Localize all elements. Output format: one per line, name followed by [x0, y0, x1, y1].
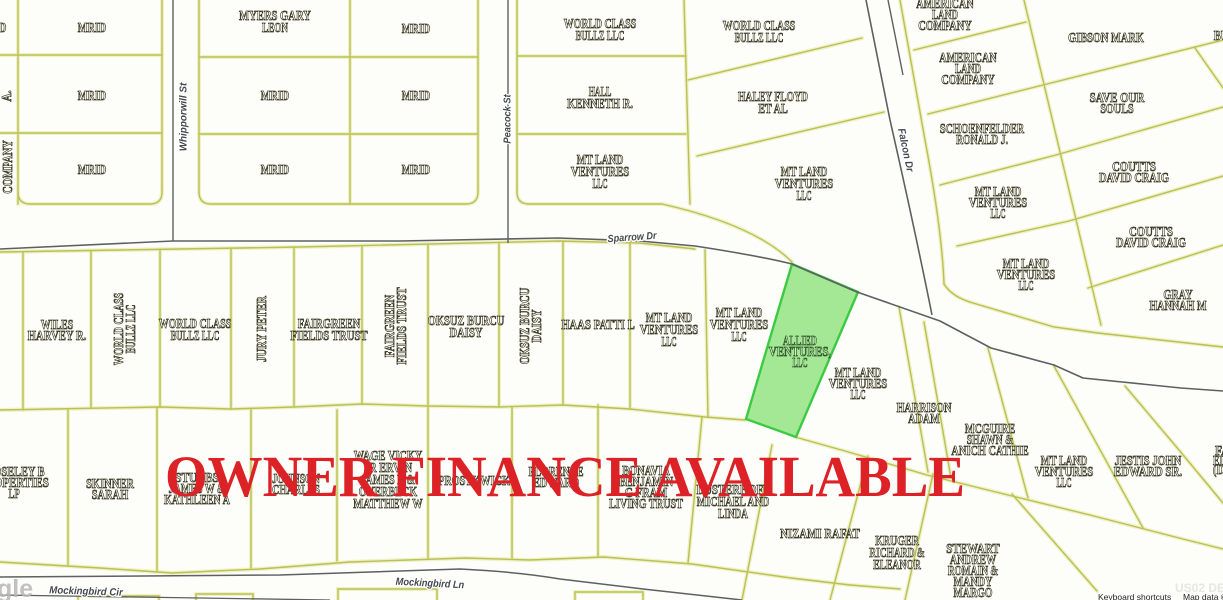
svg-text:ELEANOR: ELEANOR: [873, 557, 921, 572]
svg-text:LEON: LEON: [262, 20, 288, 35]
svg-text:FIELDS TRUST: FIELDS TRUST: [290, 328, 367, 343]
svg-text:OWNER FINANCE AVAILABLE: OWNER FINANCE AVAILABLE: [165, 444, 965, 509]
svg-text:MRID: MRID: [261, 162, 289, 177]
svg-text:MRID: MRID: [402, 162, 430, 177]
svg-text:DAISY: DAISY: [529, 309, 544, 343]
svg-text:KENNETH R.: KENNETH R.: [567, 96, 633, 111]
svg-text:LLC: LLC: [850, 387, 865, 402]
svg-text:Keyboard shortcuts: Keyboard shortcuts: [1098, 592, 1171, 600]
svg-text:BULLZ LLC: BULLZ LLC: [735, 30, 784, 45]
svg-text:MRID: MRID: [402, 21, 430, 36]
svg-text:LLC: LLC: [661, 334, 676, 349]
svg-text:MRID: MRID: [402, 88, 430, 103]
svg-text:LP: LP: [8, 486, 19, 501]
svg-text:LLC: LLC: [1018, 278, 1033, 293]
svg-text:EDWARD SR.: EDWARD SR.: [1114, 464, 1183, 479]
svg-text:HAAS PATTI L: HAAS PATTI L: [561, 317, 635, 332]
svg-text:BU: BU: [1214, 28, 1223, 43]
svg-text:MARGO: MARGO: [954, 585, 993, 600]
svg-text:LLC: LLC: [990, 206, 1005, 221]
svg-text:HANNAH M: HANNAH M: [1149, 298, 1207, 313]
svg-text:HARVEY R.: HARVEY R.: [28, 328, 87, 343]
svg-text:GIBSON MARK: GIBSON MARK: [1068, 30, 1144, 45]
svg-text:JURY PETER: JURY PETER: [254, 296, 269, 362]
svg-text:ADAM: ADAM: [908, 411, 940, 426]
svg-text:MRID: MRID: [0, 20, 6, 35]
svg-text:A.: A.: [0, 90, 14, 101]
svg-text:PROPERTIES: PROPERTIES: [0, 475, 49, 490]
svg-text:COMPANY: COMPANY: [941, 72, 995, 87]
svg-text:LLC: LLC: [592, 176, 607, 191]
svg-text:Peacock St: Peacock St: [503, 94, 514, 143]
svg-text:LLC: LLC: [792, 355, 807, 370]
svg-text:SOULS: SOULS: [1100, 101, 1133, 116]
svg-text:COMPANY: COMPANY: [0, 140, 15, 194]
svg-text:(DAR: (DAR: [1213, 462, 1223, 477]
svg-text:gle: gle: [0, 575, 33, 600]
svg-text:DAISY: DAISY: [449, 325, 483, 340]
svg-text:COMPANY: COMPANY: [918, 18, 972, 33]
svg-text:BULLZ LLC: BULLZ LLC: [576, 28, 625, 43]
svg-text:SARAH: SARAH: [92, 487, 129, 502]
svg-text:DAVID CRAIG: DAVID CRAIG: [1116, 235, 1186, 250]
svg-text:MRID: MRID: [78, 162, 106, 177]
svg-text:BULLZ LLC: BULLZ LLC: [123, 305, 138, 354]
svg-text:LLC: LLC: [731, 329, 746, 344]
svg-text:LLC: LLC: [1056, 475, 1071, 490]
svg-text:LLC: LLC: [796, 188, 811, 203]
svg-text:MRID: MRID: [261, 88, 289, 103]
svg-text:FIELDS TRUST: FIELDS TRUST: [394, 287, 409, 364]
svg-text:Map data ©2022: Map data ©2022: [1183, 592, 1223, 600]
svg-text:NIZAMI RAFAT: NIZAMI RAFAT: [780, 526, 860, 541]
svg-text:Whipporwill St: Whipporwill St: [179, 82, 190, 151]
svg-text:MRID: MRID: [78, 88, 106, 103]
svg-text:DAVID CRAIG: DAVID CRAIG: [1099, 170, 1169, 185]
svg-text:RONALD J.: RONALD J.: [956, 132, 1008, 147]
svg-text:ET AL: ET AL: [758, 101, 788, 116]
svg-text:BULLZ LLC: BULLZ LLC: [171, 328, 220, 343]
svg-text:MRID: MRID: [78, 20, 106, 35]
